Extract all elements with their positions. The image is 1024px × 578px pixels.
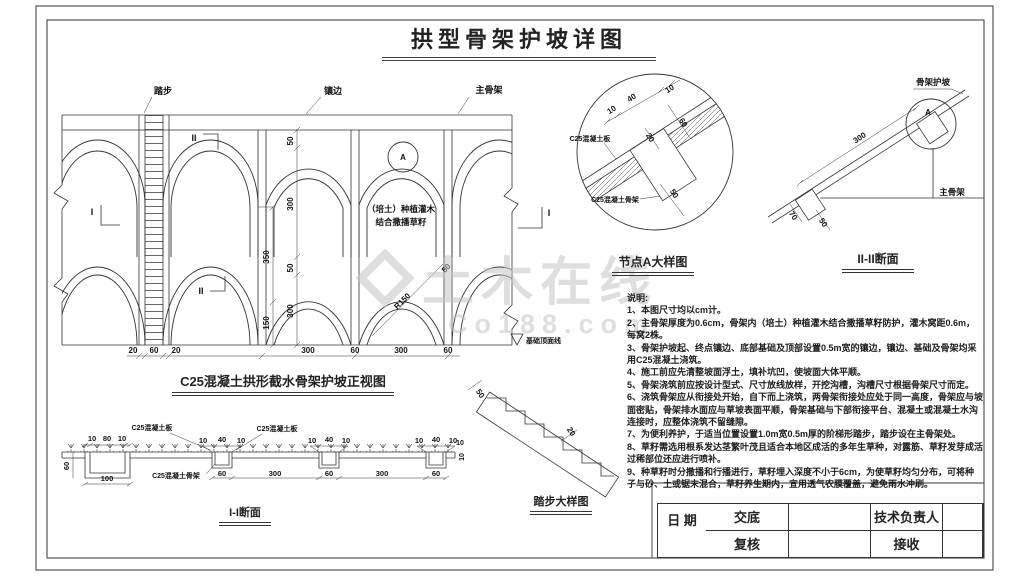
dim-label: 10 [199, 436, 207, 445]
dim-label: 10 [605, 103, 618, 116]
dim-label: 40 [432, 435, 440, 444]
arch-cells [50, 140, 547, 345]
frame-rib [319, 452, 339, 468]
notes-block: 说明: 1、本图尺寸均以cm计。 2、主骨架厚度为0.6cm，骨架内（培土）种植… [627, 292, 983, 491]
planting-note-2: 结合撒播草籽 [375, 217, 427, 227]
toe-trench [795, 189, 825, 220]
note-item: 6、浇筑骨架应从衔接处开始，自下而上浇筑，两骨架衔接处应处于同一高度，骨架应与坡… [627, 391, 983, 428]
cad-linework: 踏步 镶边 主骨架 II II I I A （培土）种植灌木 结合撒播草籽 基础… [0, 0, 1024, 578]
break-line-left [54, 115, 68, 345]
dim-label: 50 [286, 263, 295, 272]
slab-label: C25混凝土板 [257, 424, 299, 433]
main-frame-label: 主骨架 [475, 84, 502, 95]
title-block-date-label: 日 期 [658, 504, 706, 557]
slope-label: 骨架护坡 [916, 77, 951, 87]
steps-label: 踏步 [154, 85, 172, 96]
dim-label: 60 [325, 469, 333, 478]
stair-zigzag [487, 398, 614, 476]
foundation-level-icon [511, 334, 523, 345]
note-item: 3、骨架护坡起、终点镶边、底部基础及顶部设置0.5m宽的镶边，镶边、基础及骨架均… [627, 342, 983, 367]
dim-label: 60 [150, 346, 159, 355]
dim-label: 50 [474, 387, 487, 400]
elevation-dim-lines [101, 97, 542, 359]
foundation-line-label: 基础顶面线 [525, 336, 561, 345]
dim-label: 60 [351, 346, 360, 355]
dim-label: 10 [415, 436, 423, 445]
dim-label: 50 [440, 262, 453, 275]
section-marker-i-right: I [548, 208, 551, 218]
dim-label: 10 [308, 436, 316, 445]
note-item: 5、骨架浇筑前应按设计型式、尺寸放线放样，开挖沟槽，沟槽尺寸根据骨架尺寸而定。 [627, 379, 983, 391]
radius-label: R150 [392, 291, 412, 311]
section-ii-caption: II-II断面 [842, 250, 914, 273]
edge-label: 镶边 [324, 85, 343, 96]
main-frame-label: 主骨架 [939, 187, 965, 197]
dim-label: 300 [269, 469, 282, 478]
page-title: 拱型骨架护坡详图 [382, 22, 656, 61]
dim-label: 40 [325, 435, 333, 444]
node-a-label: A [400, 153, 406, 162]
steps-caption: 踏步大样图 [530, 493, 592, 515]
dim-label: 20 [129, 346, 138, 355]
note-item: 8、草籽需选用根系发达茎繁叶茂且适合本地区成活的多年生草种，对露筋、草籽发芽成活… [627, 441, 983, 466]
section-ii-view: 骨架护坡 主骨架 A 300 70 50 [768, 77, 984, 230]
steps-ladder [145, 115, 163, 345]
dim-label: 20 [565, 425, 578, 438]
notes-heading: 说明: [627, 292, 983, 304]
dim-label: 40 [625, 91, 638, 104]
frame-rib [426, 452, 446, 468]
break-line-right [504, 115, 518, 345]
title-block-tech-lead-value[interactable] [943, 504, 983, 531]
dim-label: 70 [787, 209, 800, 222]
dim-label: 300 [394, 346, 408, 355]
note-item: 4、施工前应先清整坡面浮土，填补坑凹，使坡面大体平顺。 [627, 366, 983, 378]
dim-label: 60 [62, 462, 71, 470]
dim-label: 150 [262, 316, 271, 330]
detail-a-view: 10 40 10 20 60 50 C25混凝土板 C25混凝土骨架 [570, 74, 733, 230]
note-item: 9、种草籽时分撒播和行播进行，草籽埋入深度不小于6cm，为使草籽均匀分布，可将种… [627, 466, 983, 491]
dim-label: 60 [432, 469, 440, 478]
title-block-review-label: 复核 [706, 531, 789, 558]
dim-label: 40 [218, 435, 226, 444]
dim-label: 10 [342, 436, 350, 445]
title-block-receive-label: 接收 [871, 531, 943, 558]
note-item: 7、为便利养护，于适当位置设置1.0m宽0.5m厚的阶梯形踏步，踏步设在主骨架处… [627, 428, 983, 440]
dim-label: 300 [301, 346, 315, 355]
dim-label: 20 [172, 346, 181, 355]
dim-label: 100 [101, 474, 114, 483]
slab-label: C25混凝土板 [570, 134, 612, 143]
section-marker-ii-mid: II [198, 286, 203, 296]
title-block-receive-value[interactable] [943, 531, 983, 558]
dim-label: 300 [286, 304, 295, 318]
title-block-brief-value[interactable] [789, 504, 871, 531]
elevation-caption: C25混凝土拱形截水骨架护坡正视图 [172, 371, 394, 396]
title-block-tech-lead-label: 技术负责人 [871, 504, 943, 531]
section-marker-ii-top: II [191, 133, 196, 143]
slab-label: C25混凝土板 [132, 423, 174, 432]
elevation-view: 踏步 镶边 主骨架 II II I I A （培土）种植灌木 结合撒播草籽 基础… [50, 84, 561, 359]
dim-label: 10 [663, 82, 676, 95]
node-a-label: A [925, 108, 931, 117]
section-marker-i-left: I [91, 207, 94, 217]
frame-label: C25混凝土骨架 [591, 195, 639, 204]
dim-label: 60 [444, 346, 453, 355]
dim-label: 10 [456, 440, 464, 447]
dim-label: 10 [118, 434, 126, 443]
dim-label: 10 [459, 453, 466, 461]
dim-label: 350 [262, 250, 271, 264]
planting-note-1: （培土）种植灌木 [367, 204, 436, 214]
title-block: 交底 技术负责人 日 期 复核 接收 [657, 503, 984, 558]
detail-a-caption: 节点A大样图 [612, 253, 694, 276]
steps-detail-view: 50 20 [468, 380, 619, 497]
dim-label: 50 [817, 216, 830, 229]
dim-label: 10 [88, 434, 96, 443]
frame-rib [212, 452, 232, 468]
title-block-review-value[interactable] [789, 531, 871, 558]
dim-label: 50 [286, 136, 295, 145]
section-i-caption: I-I断面 [219, 504, 271, 526]
note-item: 1、本图尺寸均以cm计。 [627, 304, 983, 316]
frame-label: C25混凝土骨架 [152, 471, 200, 480]
title-block-brief-label: 交底 [706, 504, 789, 531]
dim-label: 80 [103, 434, 111, 443]
dim-label: 300 [852, 130, 869, 145]
drawing-sheet: { "title": "拱型骨架护坡详图", "watermark": { "b… [0, 0, 1024, 578]
dim-label: 10 [237, 436, 245, 445]
frame-trench [917, 112, 949, 144]
note-item: 2、主骨架厚度为0.6cm，骨架内（培土）种植灌木结合撒播草籽防护，灌木窝距0.… [627, 317, 983, 342]
dim-label: 300 [376, 469, 389, 478]
dim-label: 60 [218, 469, 226, 478]
dim-label: 300 [286, 197, 295, 211]
section-i-view: 10 80 10 60 100 10 40 10 10 40 10 10 40 … [62, 423, 466, 486]
